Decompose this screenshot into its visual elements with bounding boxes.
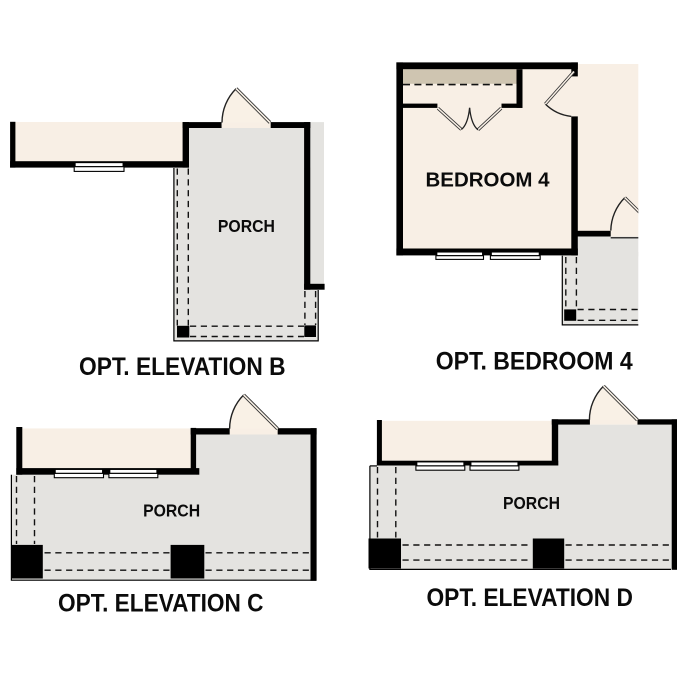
svg-text:PORCH: PORCH bbox=[218, 216, 275, 236]
svg-text:OPT. ELEVATION C: OPT. ELEVATION C bbox=[58, 590, 264, 618]
svg-text:PORCH: PORCH bbox=[503, 493, 560, 513]
svg-text:PORCH: PORCH bbox=[143, 501, 200, 521]
svg-text:OPT. BEDROOM 4: OPT. BEDROOM 4 bbox=[436, 348, 633, 376]
svg-text:OPT. ELEVATION D: OPT. ELEVATION D bbox=[426, 584, 633, 612]
svg-text:OPT. ELEVATION B: OPT. ELEVATION B bbox=[79, 353, 286, 381]
svg-text:BEDROOM 4: BEDROOM 4 bbox=[426, 168, 551, 191]
